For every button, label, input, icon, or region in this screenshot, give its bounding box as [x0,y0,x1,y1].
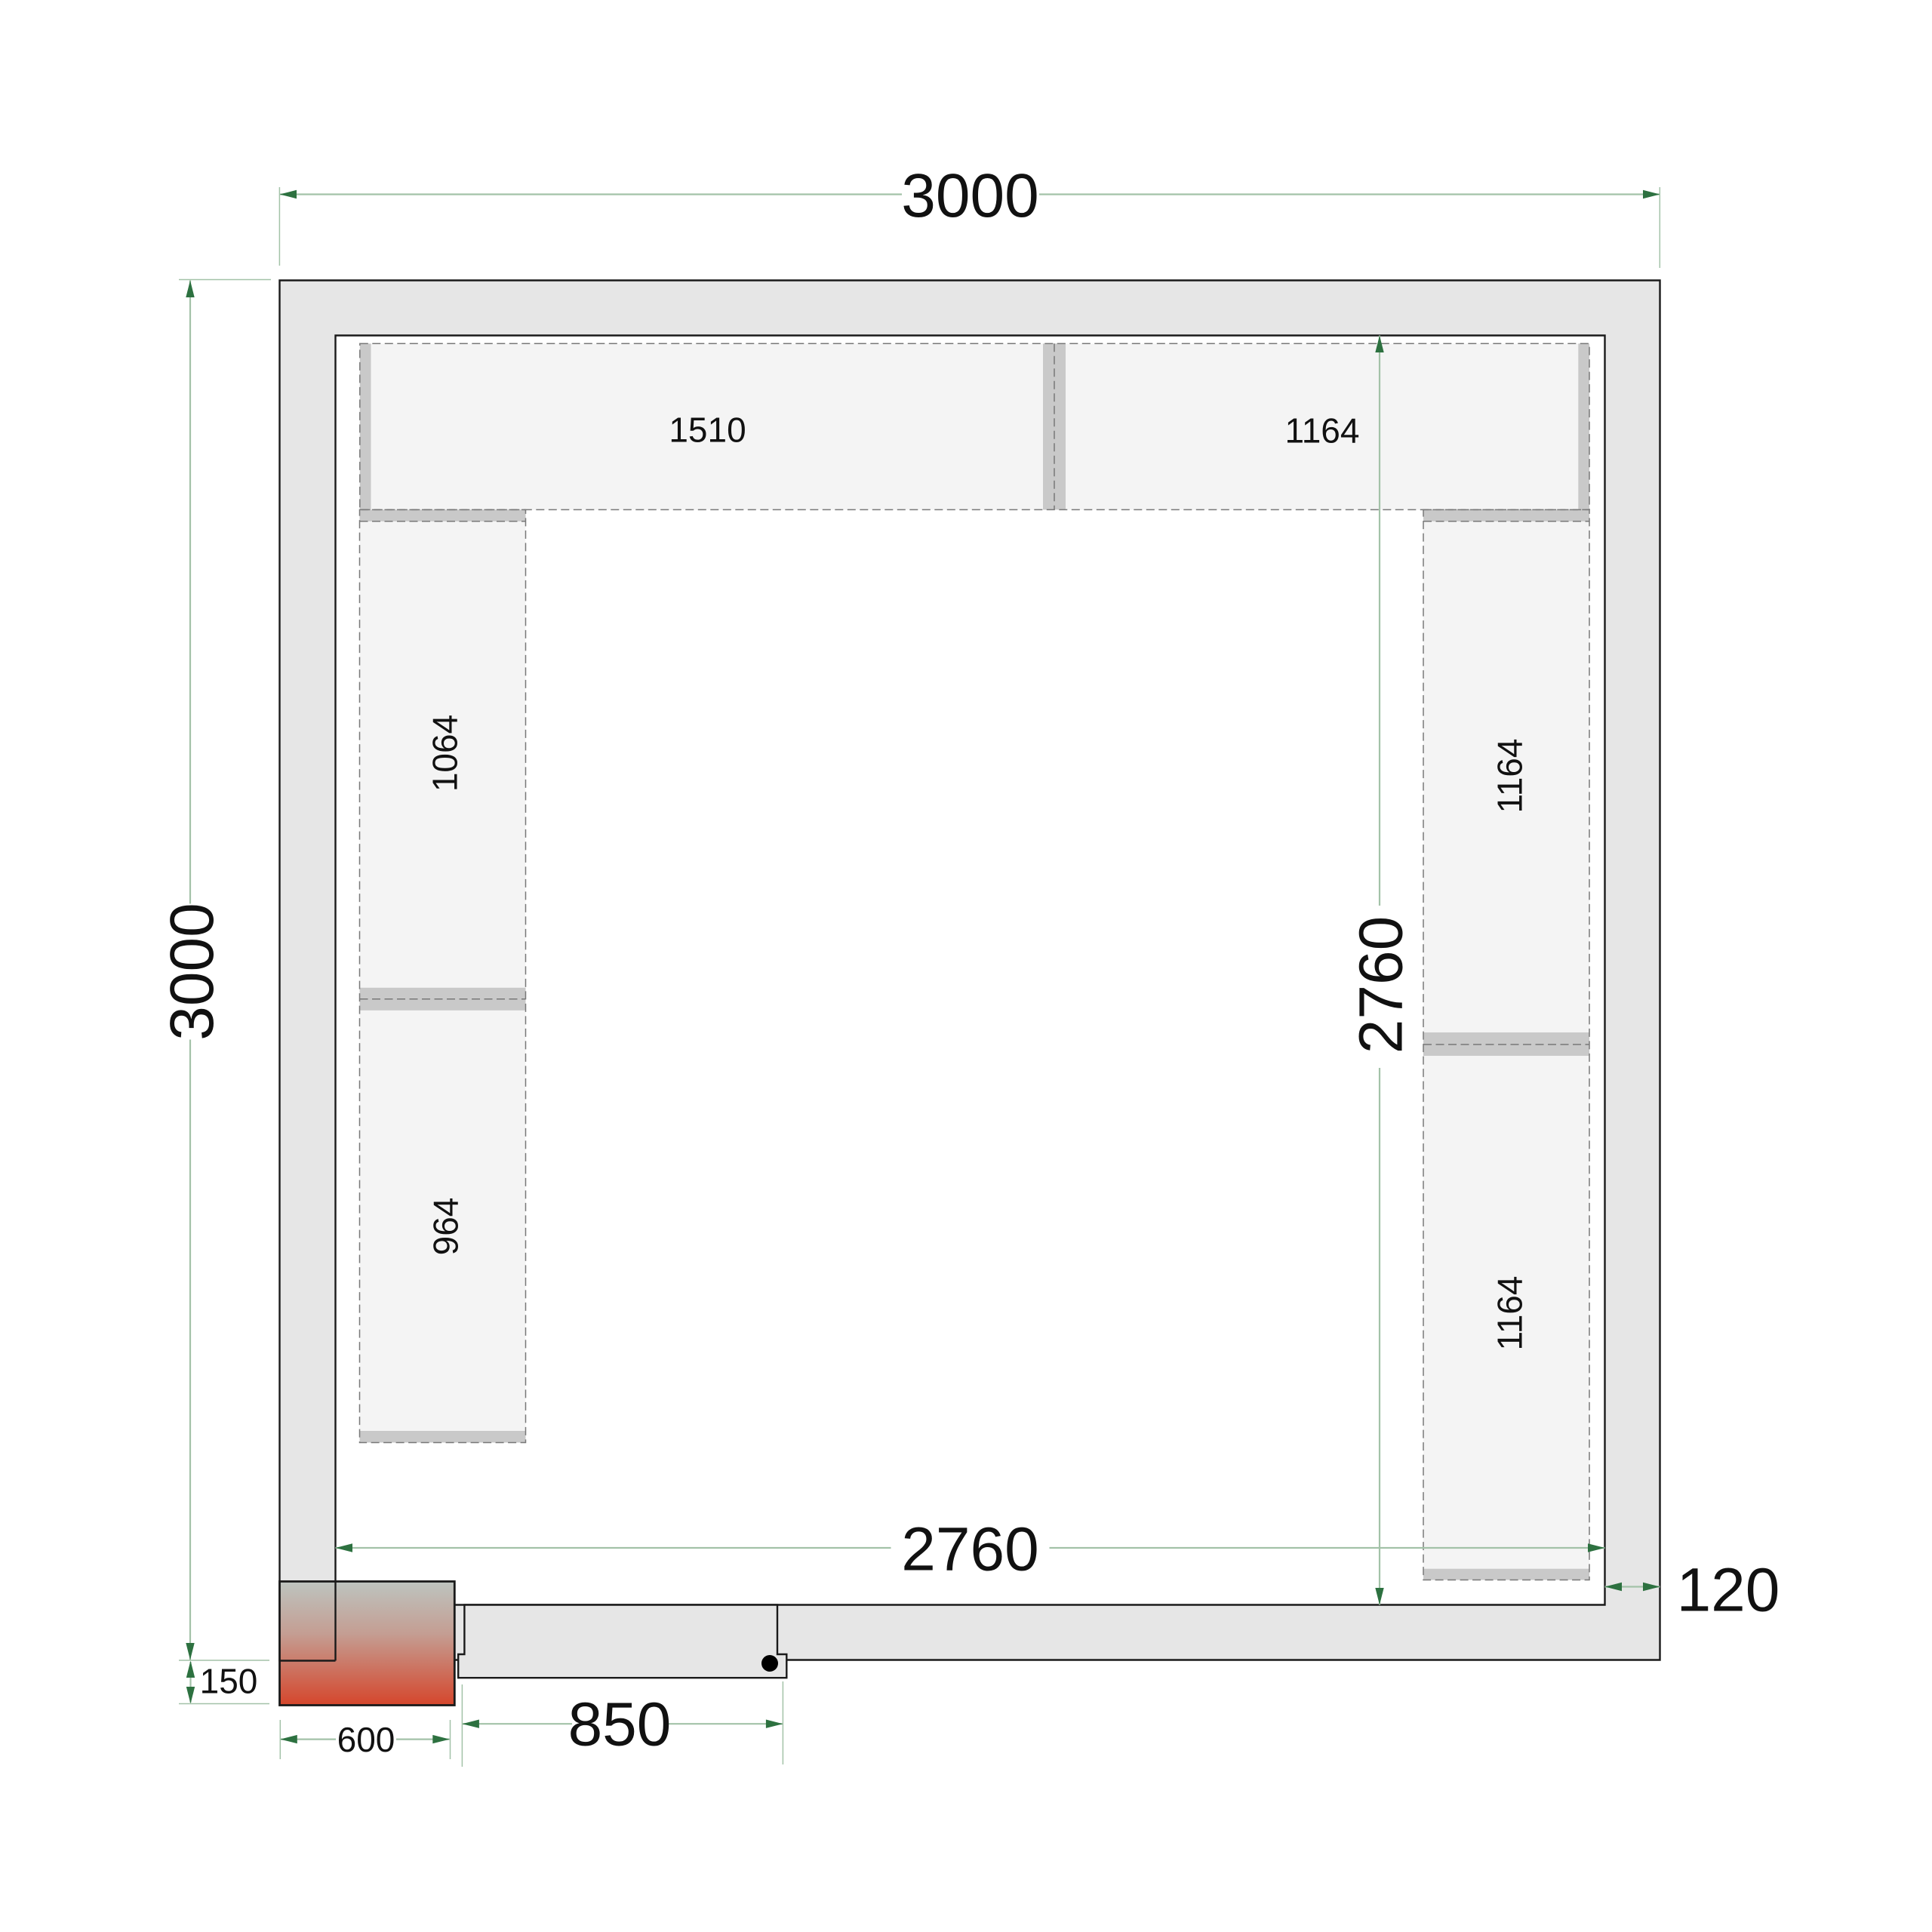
svg-text:1164: 1164 [1285,411,1360,451]
svg-text:600: 600 [337,1720,395,1759]
svg-text:150: 150 [200,1662,258,1701]
svg-text:3000: 3000 [901,162,1038,230]
svg-text:120: 120 [1677,1556,1780,1625]
svg-text:850: 850 [568,1690,672,1759]
svg-text:1064: 1064 [426,715,465,792]
svg-text:2760: 2760 [1347,916,1416,1054]
svg-text:1164: 1164 [1491,1276,1530,1351]
svg-text:3000: 3000 [158,903,226,1040]
svg-text:1164: 1164 [1491,739,1530,814]
svg-text:964: 964 [426,1198,466,1256]
svg-text:2760: 2760 [901,1515,1038,1584]
svg-text:1510: 1510 [669,411,746,450]
